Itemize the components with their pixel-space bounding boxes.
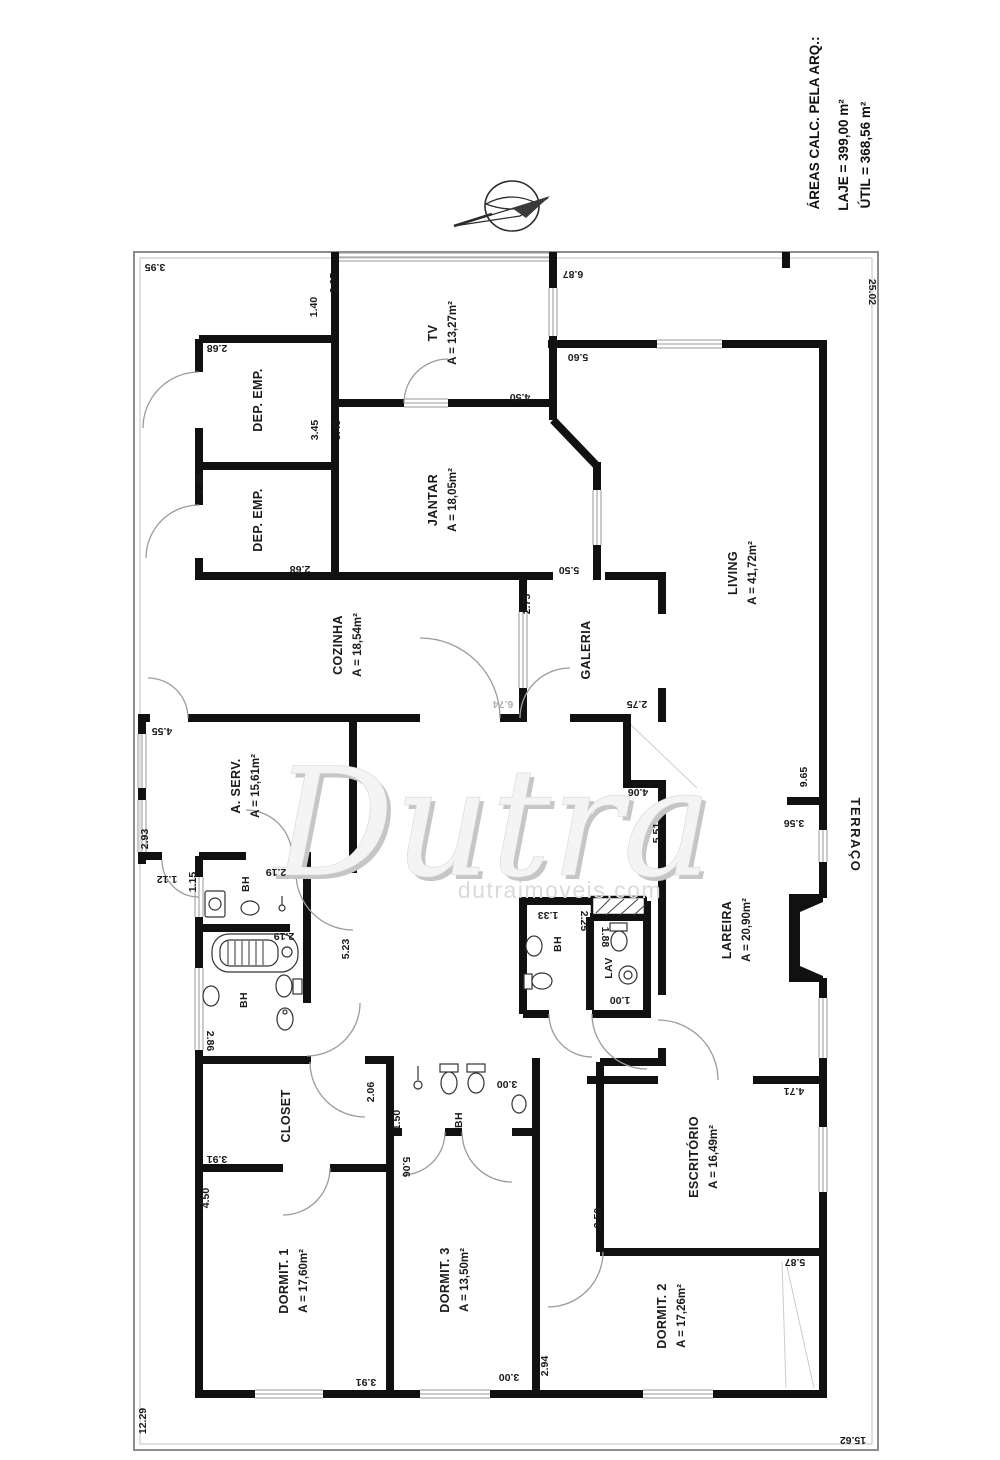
room-label-tv: TV — [426, 324, 440, 341]
room-label-dep-emp-1: DEP. EMP. — [251, 368, 265, 432]
room-label-bh-emp: BH — [240, 876, 252, 892]
round-sink — [619, 966, 637, 984]
room-area-escritorio: A = 16,49m² — [708, 1125, 720, 1189]
room-label-escritorio: ESCRITÓRIO — [686, 1116, 701, 1198]
dimension-label: 4.50 — [510, 391, 531, 403]
room-label-lareira: LAREIRA — [720, 901, 734, 959]
room-label-dormit-1: DORMIT. 1 — [277, 1248, 291, 1313]
north-arrow-icon — [454, 181, 550, 231]
info-util: ÚTIL = 368,56 m² — [858, 101, 873, 208]
room-label-dormit-3: DORMIT. 3 — [438, 1247, 452, 1312]
room-label-dormit-2: DORMIT. 2 — [655, 1283, 669, 1348]
door-arc — [307, 1003, 360, 1056]
dimension-label: 12.29 — [137, 1408, 149, 1434]
room-label-bh-master: BH — [238, 992, 250, 1008]
dimension-label: 2.19 — [266, 866, 287, 878]
shower-head — [414, 1066, 422, 1089]
dimension-label: 4.50 — [200, 1188, 212, 1209]
dimension-label: 6.74 — [493, 698, 514, 710]
room-area-dormit-1: A = 17,60m² — [298, 1249, 310, 1313]
door-arc — [462, 1132, 512, 1182]
room-area-jantar: A = 18,05m² — [447, 468, 459, 532]
dimension-label: 2.86 — [204, 1031, 216, 1052]
door-arc — [549, 1014, 592, 1057]
dimension-label: 5.60 — [568, 351, 589, 363]
dimension-label: 2.45 — [194, 474, 206, 495]
dimension-label: 2.95 — [328, 273, 340, 294]
dimension-label: 1.15 — [187, 872, 199, 893]
window — [819, 1127, 827, 1192]
dimension-label: 3.00 — [499, 1371, 520, 1383]
fireplace — [789, 894, 823, 982]
toilet — [610, 923, 627, 951]
room-label-a-serv: A. SERV. — [229, 758, 243, 813]
sink — [512, 1095, 526, 1113]
dimension-label: 3.50 — [592, 1208, 604, 1229]
dimension-label: 2.93 — [139, 829, 151, 850]
dimension-label: 4.06 — [628, 786, 649, 798]
dimension-label: 5.51 — [651, 823, 663, 844]
dimension-label: 3.45 — [309, 420, 321, 441]
dimension-label: 25.02 — [866, 279, 878, 305]
dimension-label: 4.71 — [784, 1085, 805, 1097]
room-label-jantar: JANTAR — [426, 474, 440, 526]
bidet — [277, 1008, 293, 1030]
washer — [205, 891, 225, 917]
door-arc — [310, 1062, 365, 1117]
dimension-label: 1.00 — [610, 994, 631, 1006]
door-arc — [148, 678, 188, 718]
dimension-label: 1.33 — [538, 909, 559, 921]
door-arc — [420, 638, 500, 718]
room-label-bh-central: BH — [552, 936, 564, 952]
window — [593, 490, 601, 545]
dimension-label: 15.62 — [840, 1434, 866, 1446]
window — [339, 253, 549, 261]
window — [657, 340, 722, 348]
sink — [203, 986, 219, 1006]
room-area-dormit-3: A = 13,50m² — [459, 1248, 471, 1312]
floor-plan-page: Dutra Dutra dutraimoveis.com 3.952.951.4… — [0, 0, 1000, 1460]
toilet — [524, 973, 552, 989]
dimension-label: 2.94 — [539, 1356, 551, 1377]
dimension-label: 3.91 — [207, 1153, 228, 1165]
floor-plan-canvas: Dutra Dutra dutraimoveis.com 3.952.951.4… — [0, 0, 1000, 1460]
dimension-label: 3.56 — [784, 817, 805, 829]
room-label-galeria: GALERIA — [579, 620, 593, 679]
dimension-label: 2.68 — [207, 342, 228, 354]
dimension-label: 2.19 — [274, 930, 295, 942]
window — [404, 399, 448, 407]
dimension-label: 5.50 — [559, 564, 580, 576]
sink — [241, 901, 259, 915]
areas-info-panel: ÁREAS CALC. PELA ARQ.: LAJE = 399,00 m² … — [807, 36, 873, 210]
room-area-dormit-2: A = 17,26m² — [676, 1284, 688, 1348]
dimension-label: 1.50 — [391, 1110, 403, 1131]
door-arc — [658, 1020, 718, 1080]
door-arc — [283, 1168, 330, 1215]
info-heading: ÁREAS CALC. PELA ARQ.: — [807, 36, 822, 209]
door-arc — [146, 505, 199, 558]
dimension-label: 3.00 — [497, 1078, 518, 1090]
room-area-tv: A = 13,27m² — [447, 301, 459, 365]
room-label-lav: LAV — [603, 957, 615, 978]
door-arc — [404, 359, 448, 403]
watermark-domain: dutraimoveis.com — [458, 877, 662, 903]
dimension-label: 9.65 — [798, 767, 810, 788]
window — [819, 830, 827, 862]
toilet — [276, 975, 302, 997]
dimension-label: 1.12 — [157, 873, 178, 885]
room-label-dep-emp-2: DEP. EMP. — [251, 488, 265, 552]
dimension-label: 2.75 — [627, 698, 648, 710]
dimension-label: 2.68 — [290, 563, 311, 575]
door-arc — [548, 1252, 603, 1307]
room-area-lareira: A = 20,90m² — [741, 898, 753, 962]
dimension-label: 6.87 — [563, 268, 584, 280]
dimension-label: 2.75 — [521, 594, 533, 615]
dimension-label: 5.23 — [340, 939, 352, 960]
window — [819, 998, 827, 1058]
room-label-closet: CLOSET — [279, 1089, 293, 1142]
dimension-label: 3.95 — [145, 261, 166, 273]
dimension-label: 5.06 — [400, 1157, 412, 1178]
room-label-terraco: TERRAÇO — [848, 798, 863, 873]
room-area-living: A = 41,72m² — [747, 541, 759, 605]
dimension-label: 2.06 — [365, 1082, 377, 1103]
door-arc — [143, 372, 199, 428]
window — [519, 612, 527, 688]
sink — [526, 936, 542, 956]
info-laje: LAJE = 399,00 m² — [836, 99, 851, 211]
dimension-label: 1.88 — [599, 927, 611, 948]
window — [549, 288, 557, 336]
room-label-living: LIVING — [726, 551, 740, 595]
room-label-bh-dorm: BH — [453, 1112, 465, 1128]
watermark: Dutra Dutra dutraimoveis.com — [271, 737, 716, 915]
room-label-cozinha: COZINHA — [331, 615, 345, 675]
dimension-label: 4.55 — [152, 725, 173, 737]
dimension-label: 2.25 — [578, 911, 590, 932]
room-area-a-serv: A = 15,61m² — [250, 754, 262, 818]
dimension-label: 3.91 — [356, 1376, 377, 1388]
dimension-label: 1.40 — [308, 297, 320, 318]
bidet — [467, 1064, 485, 1093]
toilet — [440, 1064, 458, 1094]
room-area-cozinha: A = 18,54m² — [352, 613, 364, 677]
dimension-label: 3.45 — [331, 420, 343, 441]
dimension-label: 5.87 — [785, 1256, 806, 1268]
